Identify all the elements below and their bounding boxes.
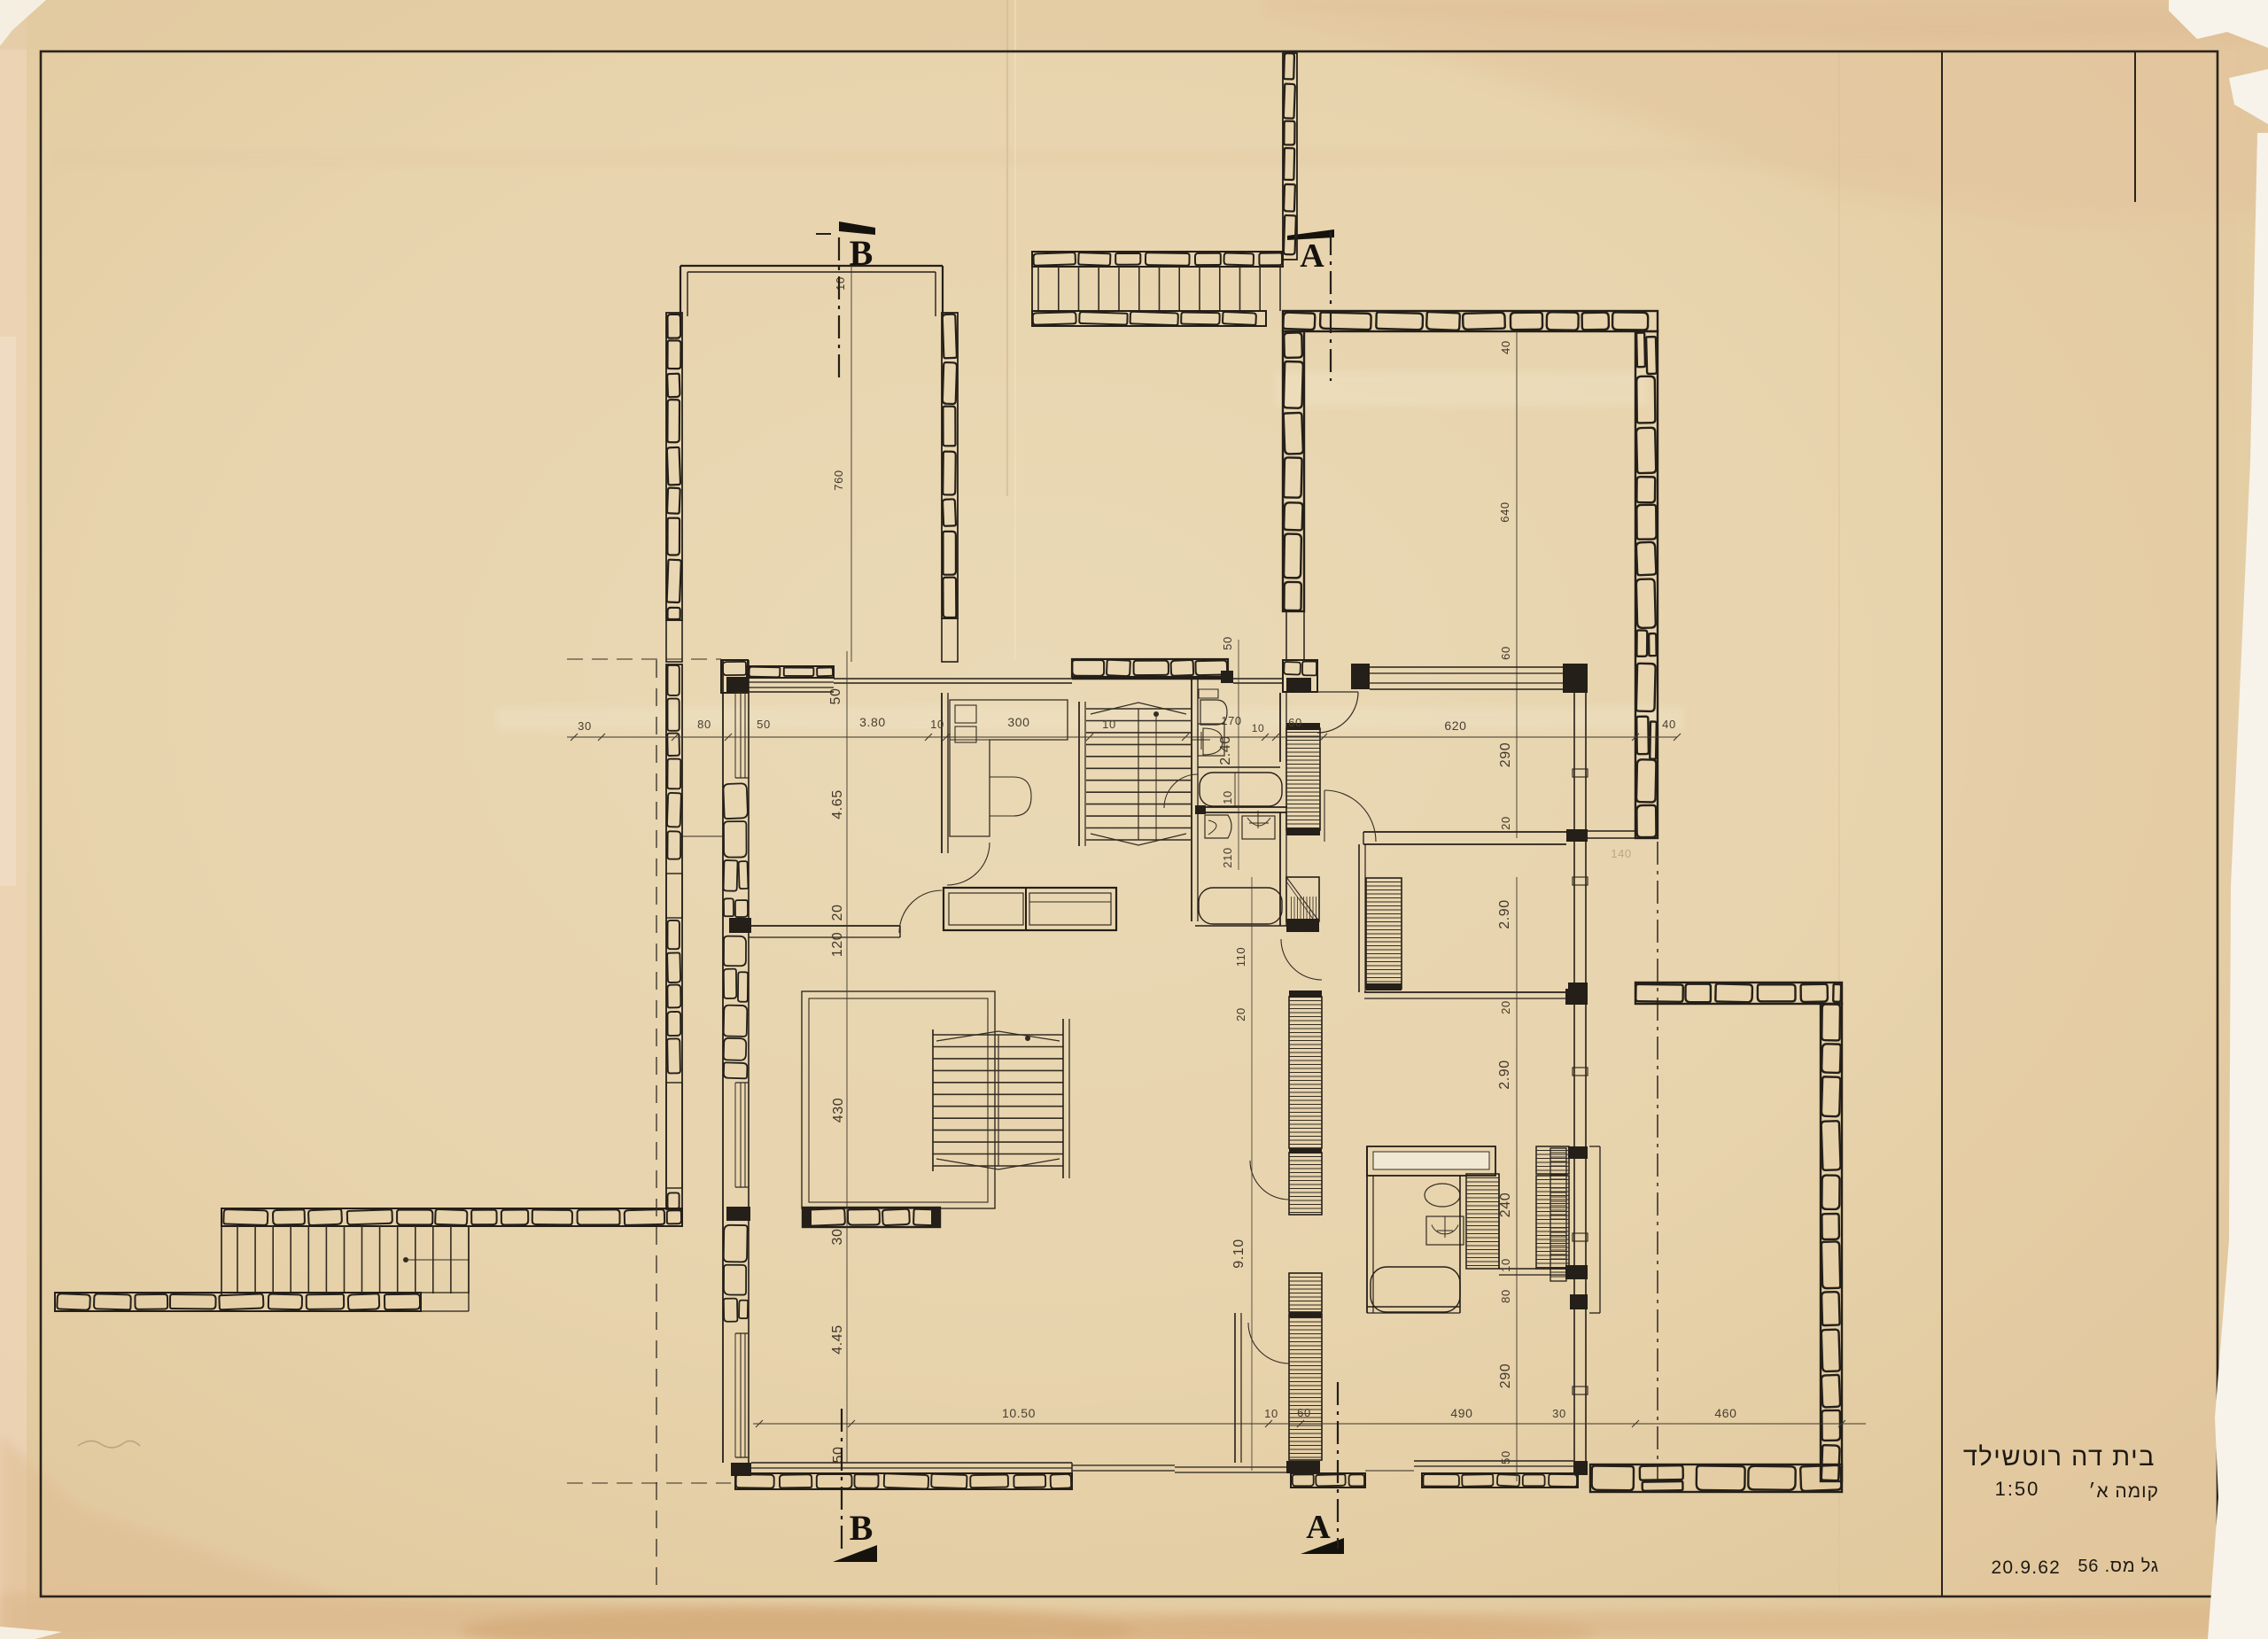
svg-text:20.9.62: 20.9.62 bbox=[1992, 1557, 2061, 1578]
svg-text:80: 80 bbox=[1499, 1289, 1512, 1303]
svg-text:290: 290 bbox=[1498, 742, 1513, 768]
svg-text:בית דה רוטשילד: בית דה רוטשילד bbox=[1963, 1443, 2155, 1472]
svg-text:2.90: 2.90 bbox=[1497, 899, 1512, 929]
svg-text:4.45: 4.45 bbox=[830, 1324, 845, 1355]
svg-text:20: 20 bbox=[1499, 1000, 1512, 1014]
svg-text:1:50: 1:50 bbox=[1995, 1478, 2040, 1500]
svg-text:50: 50 bbox=[828, 688, 843, 705]
svg-text:140: 140 bbox=[1611, 847, 1632, 860]
svg-text:60: 60 bbox=[1499, 646, 1512, 660]
svg-text:640: 640 bbox=[1498, 501, 1511, 523]
svg-text:20: 20 bbox=[1234, 1007, 1247, 1021]
svg-text:80: 80 bbox=[697, 718, 711, 731]
svg-text:50: 50 bbox=[757, 718, 771, 731]
svg-text:4.65: 4.65 bbox=[830, 789, 845, 819]
svg-text:2.90: 2.90 bbox=[1497, 1060, 1512, 1090]
svg-text:3.80: 3.80 bbox=[859, 715, 886, 729]
svg-text:60: 60 bbox=[1288, 716, 1302, 729]
svg-text:10.50: 10.50 bbox=[1002, 1406, 1036, 1420]
svg-text:B: B bbox=[850, 233, 874, 273]
svg-text:50: 50 bbox=[1499, 1450, 1512, 1464]
svg-text:9.10: 9.10 bbox=[1231, 1239, 1247, 1269]
svg-text:110: 110 bbox=[1234, 947, 1247, 967]
svg-text:10: 10 bbox=[1264, 1407, 1278, 1420]
svg-text:A: A bbox=[1306, 1509, 1331, 1546]
svg-text:10: 10 bbox=[834, 276, 847, 291]
svg-text:760: 760 bbox=[832, 470, 845, 491]
svg-text:B: B bbox=[850, 1508, 874, 1548]
svg-text:240: 240 bbox=[1498, 1192, 1513, 1218]
svg-text:30: 30 bbox=[830, 1229, 845, 1246]
svg-text:210: 210 bbox=[1221, 847, 1234, 868]
svg-text:גל מס. 56: גל מס. 56 bbox=[2078, 1557, 2159, 1576]
svg-text:50: 50 bbox=[831, 1447, 846, 1464]
svg-text:30: 30 bbox=[1552, 1407, 1566, 1420]
svg-text:290: 290 bbox=[1498, 1363, 1513, 1389]
svg-text:A: A bbox=[1300, 237, 1324, 275]
svg-text:קומה א׳: קומה א׳ bbox=[2088, 1481, 2159, 1502]
svg-text:430: 430 bbox=[831, 1098, 846, 1123]
svg-text:620: 620 bbox=[1444, 719, 1466, 733]
svg-text:2.40: 2.40 bbox=[1218, 735, 1233, 765]
svg-text:10: 10 bbox=[930, 718, 944, 731]
svg-text:40: 40 bbox=[1499, 340, 1512, 354]
svg-text:10: 10 bbox=[1499, 1258, 1512, 1272]
svg-text:50: 50 bbox=[1221, 636, 1234, 650]
svg-text:460: 460 bbox=[1714, 1406, 1736, 1420]
svg-text:10: 10 bbox=[1102, 718, 1116, 731]
svg-text:20: 20 bbox=[1499, 816, 1512, 830]
svg-text:10: 10 bbox=[1252, 722, 1265, 734]
svg-text:300: 300 bbox=[1007, 715, 1029, 729]
svg-text:10: 10 bbox=[1221, 790, 1234, 804]
svg-text:30: 30 bbox=[578, 719, 592, 733]
svg-text:20: 20 bbox=[830, 905, 845, 921]
svg-text:490: 490 bbox=[1450, 1406, 1472, 1420]
svg-text:120: 120 bbox=[830, 932, 845, 958]
svg-text:40: 40 bbox=[1662, 718, 1676, 731]
svg-text:60: 60 bbox=[1297, 1406, 1311, 1419]
